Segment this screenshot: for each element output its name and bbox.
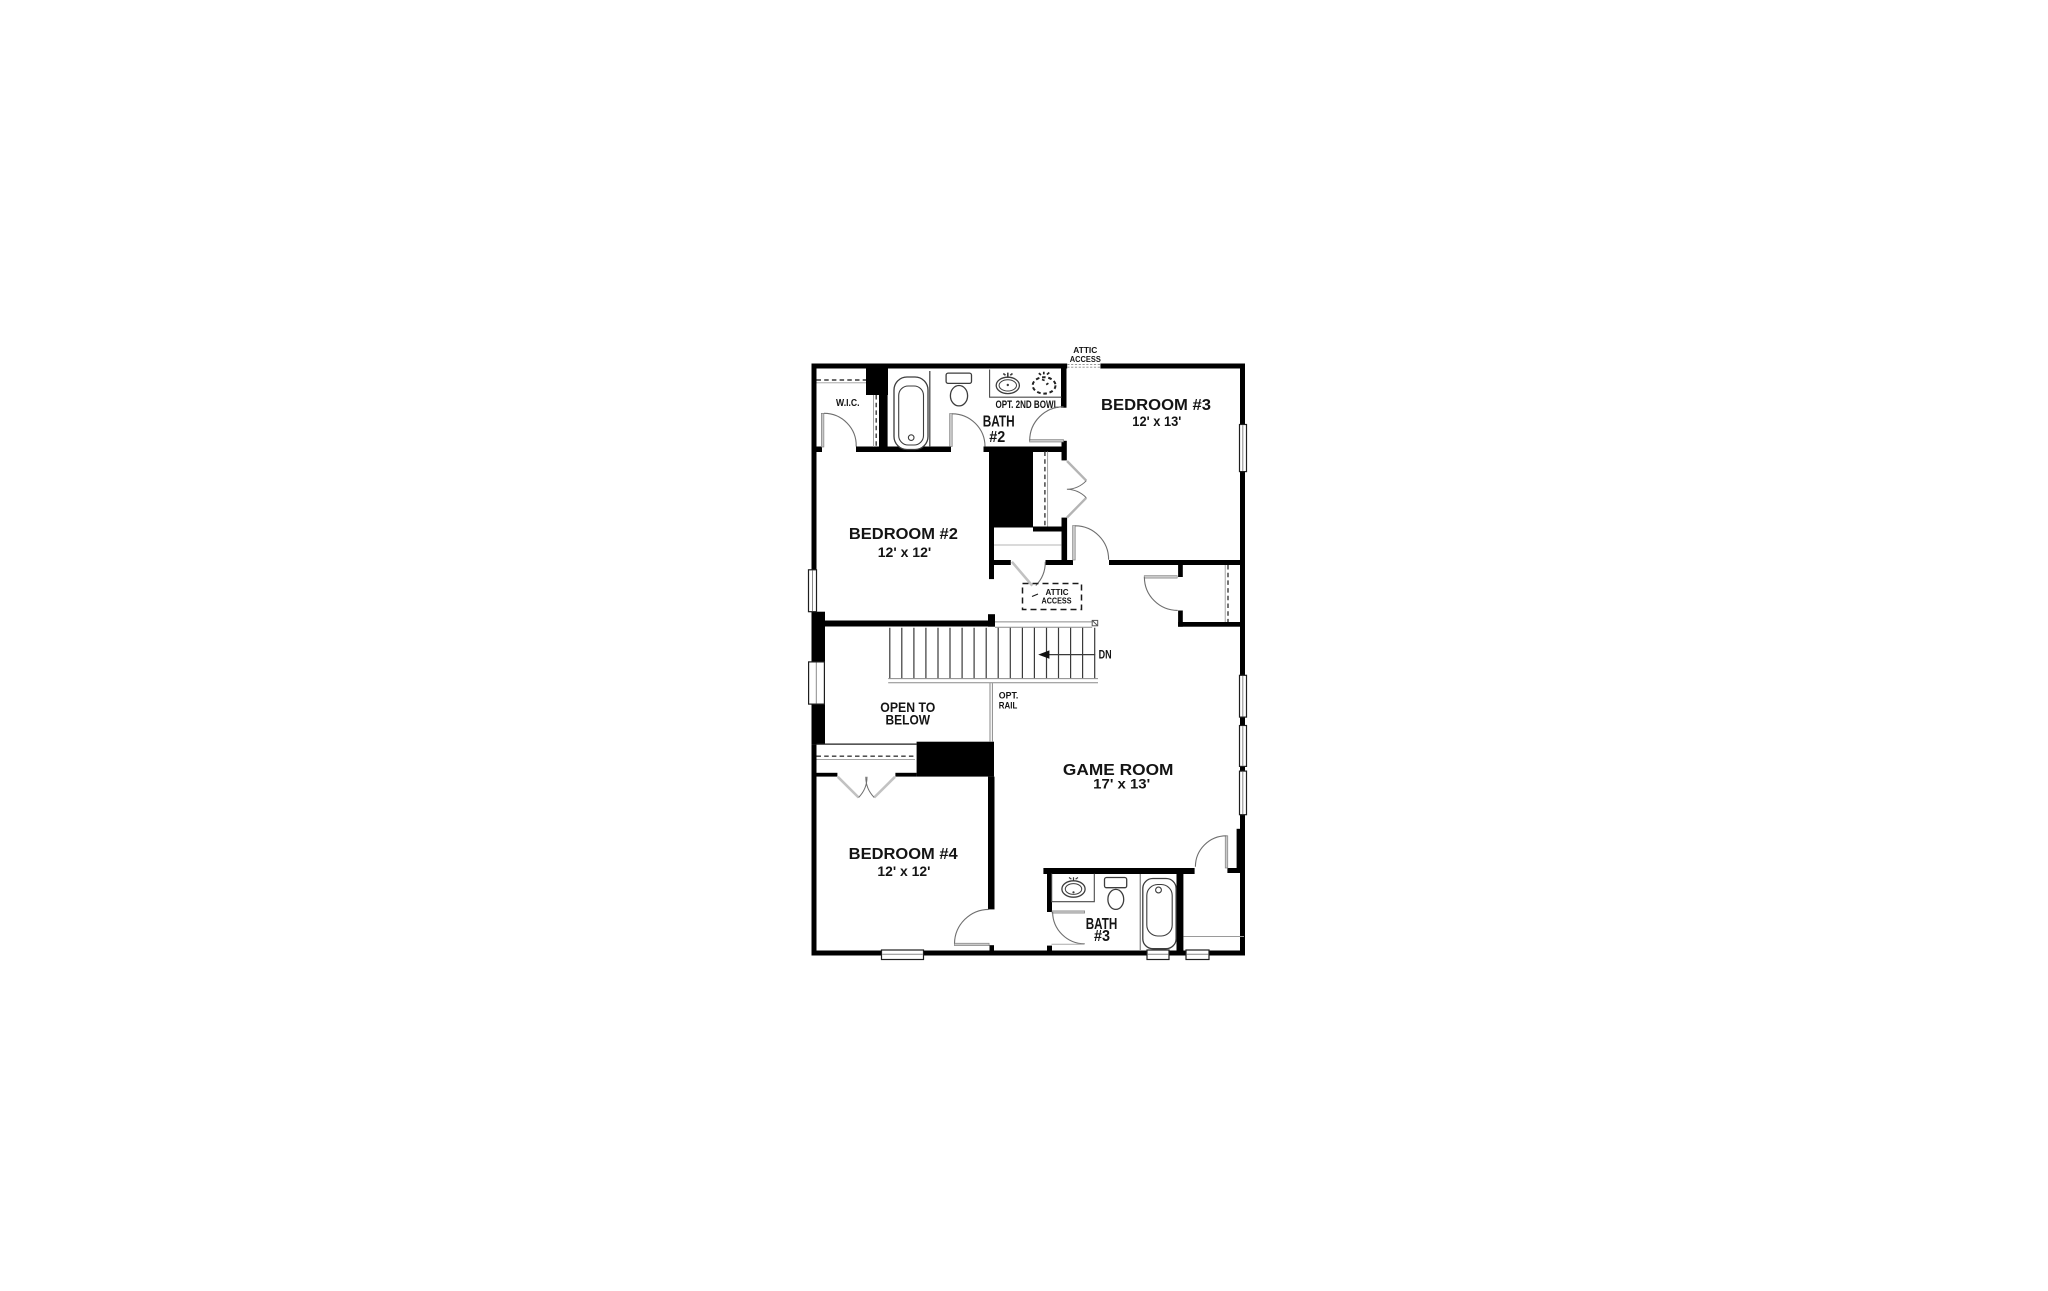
svg-text:BEDROOM #2: BEDROOM #2 [849, 526, 958, 543]
svg-text:12' x 12': 12' x 12' [878, 545, 932, 560]
svg-text:ACCESS: ACCESS [1070, 354, 1101, 364]
svg-text:BEDROOM #3: BEDROOM #3 [1101, 397, 1211, 414]
svg-text:#2: #2 [989, 429, 1005, 446]
svg-text:BATH: BATH [983, 413, 1015, 430]
svg-text:ACCESS: ACCESS [1042, 596, 1072, 606]
svg-text:17' x 13': 17' x 13' [1093, 777, 1150, 792]
svg-text:12' x 12': 12' x 12' [877, 864, 930, 879]
svg-text:12' x 13': 12' x 13' [1132, 414, 1181, 429]
svg-text:BELOW: BELOW [886, 713, 931, 728]
svg-text:DN: DN [1099, 650, 1112, 662]
svg-text:W.I.C.: W.I.C. [836, 398, 860, 409]
svg-text:BEDROOM #4: BEDROOM #4 [849, 846, 958, 863]
svg-text:RAIL: RAIL [999, 701, 1018, 712]
svg-text:#3: #3 [1094, 928, 1110, 945]
